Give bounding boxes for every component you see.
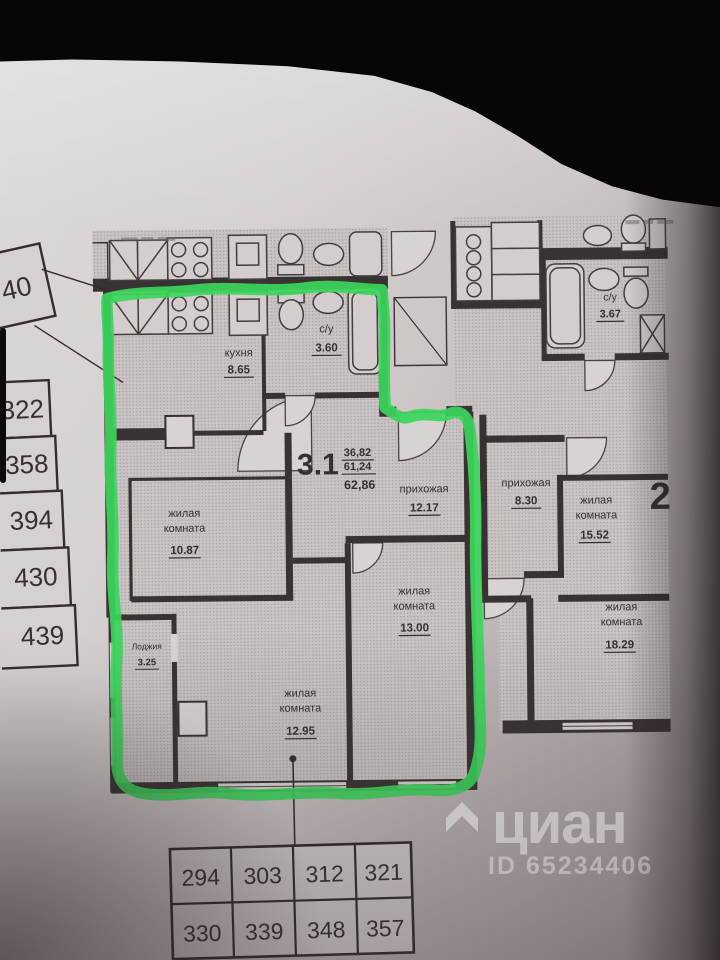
burner-icon bbox=[194, 263, 208, 277]
washbasin-icon bbox=[313, 291, 343, 313]
burner-icon bbox=[172, 263, 186, 277]
table-cell: 357 bbox=[366, 915, 405, 942]
r-bath-south-a bbox=[542, 354, 585, 361]
burner-icon bbox=[467, 283, 481, 297]
burner-icon bbox=[172, 243, 186, 257]
r-room1-area: 15.52 bbox=[580, 529, 609, 541]
toilet-icon bbox=[621, 215, 645, 243]
r-hall-south-a bbox=[484, 572, 488, 579]
apartment-number: 3.1 bbox=[297, 448, 339, 481]
bath-south-wall-b bbox=[315, 392, 386, 399]
sink-basin-icon bbox=[237, 243, 259, 265]
text-smudge bbox=[657, 220, 673, 224]
loggia-area: 3.25 bbox=[138, 657, 157, 668]
photo-scene: кухня 8.65 с/у 3.60 3.1 36,82 61,24 62,8… bbox=[0, 0, 720, 960]
room2-area: 13.00 bbox=[400, 622, 429, 634]
table-cell: 348 bbox=[307, 916, 346, 943]
room2-label-1: жилая bbox=[398, 585, 430, 597]
hall-area: 12.17 bbox=[410, 502, 439, 514]
burner-icon bbox=[467, 267, 481, 281]
sink-basin-icon bbox=[237, 299, 259, 321]
r-hall-south-b bbox=[524, 571, 564, 578]
washbasin-icon bbox=[583, 225, 611, 245]
toilet-icon bbox=[278, 234, 302, 264]
bath-area: 3.60 bbox=[315, 342, 338, 354]
burner-icon bbox=[194, 297, 208, 311]
number-stack: 322 358 394 430 439 bbox=[0, 379, 78, 669]
room3-label-1: жилая bbox=[284, 687, 316, 699]
r-hall-room-divider bbox=[557, 475, 564, 575]
burner-icon bbox=[194, 317, 208, 331]
r-room1-label-1: жилая bbox=[580, 494, 612, 506]
burner-icon bbox=[172, 297, 186, 311]
floor-plan-paper: кухня 8.65 с/у 3.60 3.1 36,82 61,24 62,8… bbox=[0, 0, 720, 960]
r-hall-north-wall bbox=[483, 435, 565, 443]
text-smudge bbox=[643, 220, 653, 224]
r-room1-label-2: комната bbox=[576, 509, 619, 521]
r-room2-label-1: жилая bbox=[605, 601, 637, 613]
watermark-brand: циан bbox=[492, 798, 627, 850]
loggia-door-gap bbox=[171, 634, 178, 662]
kitchen-south-wall-a bbox=[111, 428, 165, 441]
room3-label-2: комната bbox=[280, 702, 323, 714]
toilet-tank-icon bbox=[278, 265, 304, 275]
bath-label: с/у bbox=[319, 323, 334, 335]
text-smudge bbox=[141, 237, 153, 241]
room3-area: 12.95 bbox=[286, 725, 316, 737]
stack-number: 394 bbox=[9, 504, 54, 536]
r-step-wall bbox=[481, 595, 531, 603]
area-full: 62,86 bbox=[344, 478, 375, 492]
hall-room2-divider bbox=[346, 535, 471, 543]
washbasin-icon bbox=[314, 243, 344, 265]
kitchen-south-wall-b bbox=[193, 430, 263, 436]
stack-number: 439 bbox=[20, 620, 65, 652]
table-cell: 294 bbox=[181, 864, 220, 891]
table-cell: 303 bbox=[243, 862, 282, 889]
watermark-id: ID 65234406 bbox=[488, 852, 712, 881]
r-lower-west-wall bbox=[526, 598, 534, 726]
r-hall-area: 8.30 bbox=[515, 495, 538, 507]
area-total: 61,24 bbox=[344, 461, 373, 473]
kitchen-label: кухня bbox=[225, 347, 253, 359]
loggia-label: Лоджия bbox=[132, 641, 163, 651]
toilet-icon bbox=[624, 278, 648, 308]
cian-logo-icon bbox=[442, 796, 482, 850]
counter-icon bbox=[491, 222, 540, 300]
toilet-tank-icon bbox=[622, 243, 646, 251]
room2-label-2: комната bbox=[393, 600, 436, 612]
top-box-group: 40 bbox=[0, 243, 55, 330]
r-room2-area: 18.29 bbox=[605, 639, 634, 651]
washbasin-icon bbox=[589, 268, 619, 290]
room1-label-1: жилая bbox=[168, 508, 200, 520]
burner-icon bbox=[467, 251, 481, 265]
counter-shelf-line bbox=[492, 248, 540, 249]
bath-south-wall-a bbox=[262, 393, 285, 399]
r-hall-label: прихожая bbox=[501, 477, 550, 490]
text-smudge bbox=[121, 237, 137, 241]
hall-south-stub bbox=[293, 557, 347, 564]
counter-shelf-line bbox=[492, 274, 540, 275]
room1-area: 10.87 bbox=[170, 545, 199, 557]
corridor-door-arc bbox=[391, 231, 435, 275]
stack-number: 322 bbox=[0, 393, 45, 425]
r-apartment-number: 2 bbox=[649, 476, 671, 518]
r-bath-label: с/у bbox=[603, 291, 617, 303]
bottom-table: 294 303 312 321 330 339 348 357 bbox=[170, 842, 414, 959]
table-cell: 312 bbox=[305, 860, 344, 887]
hall-label: прихожая bbox=[400, 483, 449, 496]
toilet-icon bbox=[279, 300, 303, 330]
hall-west-wall-upper bbox=[285, 433, 292, 478]
bathtub-icon bbox=[349, 232, 381, 276]
burner-icon bbox=[172, 317, 186, 331]
room1-label-2: комната bbox=[164, 523, 207, 535]
table-cell: 330 bbox=[183, 920, 222, 947]
kitchen-area: 8.65 bbox=[228, 364, 251, 376]
r-bath-area: 3.67 bbox=[600, 308, 622, 320]
shaft-box-kitchen bbox=[165, 416, 193, 448]
bathtub-icon bbox=[546, 264, 585, 348]
r-bath-south-b bbox=[615, 353, 669, 361]
stack-number: 358 bbox=[4, 448, 49, 480]
shaft-box-loggia bbox=[178, 702, 206, 736]
toilet-tank-icon bbox=[624, 267, 648, 276]
text-smudge bbox=[157, 237, 175, 241]
cian-watermark: циан ID 65234406 bbox=[442, 796, 712, 881]
burner-icon bbox=[194, 243, 208, 257]
area-living: 36,82 bbox=[344, 447, 372, 459]
stack-number: 430 bbox=[14, 561, 59, 593]
text-smudge bbox=[625, 220, 639, 224]
elevator-diagonal bbox=[394, 297, 447, 366]
r-room2-label-2: комната bbox=[601, 616, 644, 628]
burner-icon bbox=[466, 235, 480, 249]
table-cell: 339 bbox=[245, 918, 284, 945]
table-cell: 321 bbox=[364, 859, 403, 886]
